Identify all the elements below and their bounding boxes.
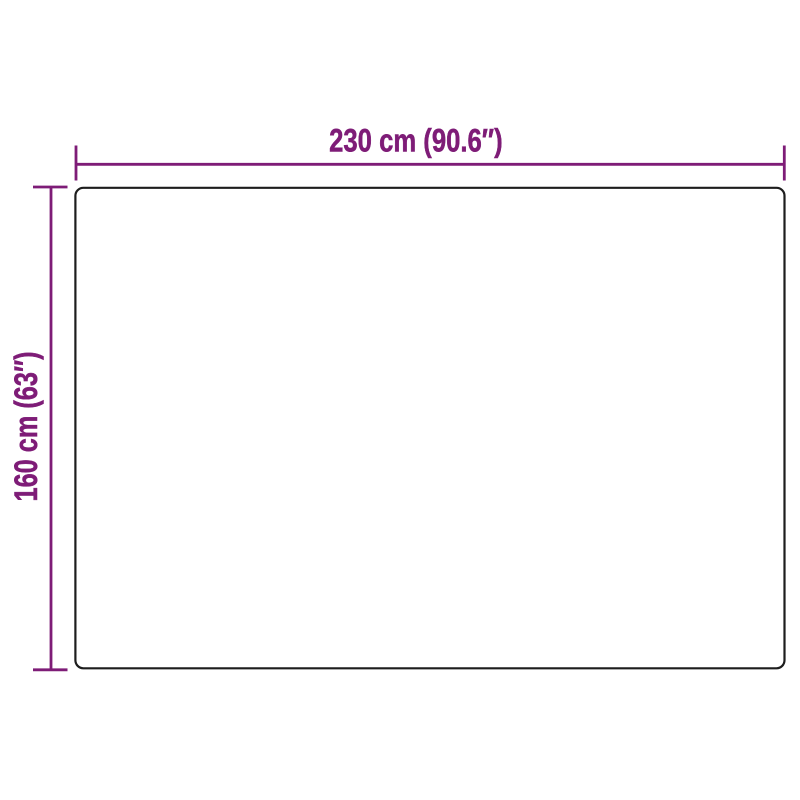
svg-text:230 cm (90.6″): 230 cm (90.6″) <box>329 121 503 158</box>
svg-text:160 cm (63″): 160 cm (63″) <box>7 352 44 502</box>
